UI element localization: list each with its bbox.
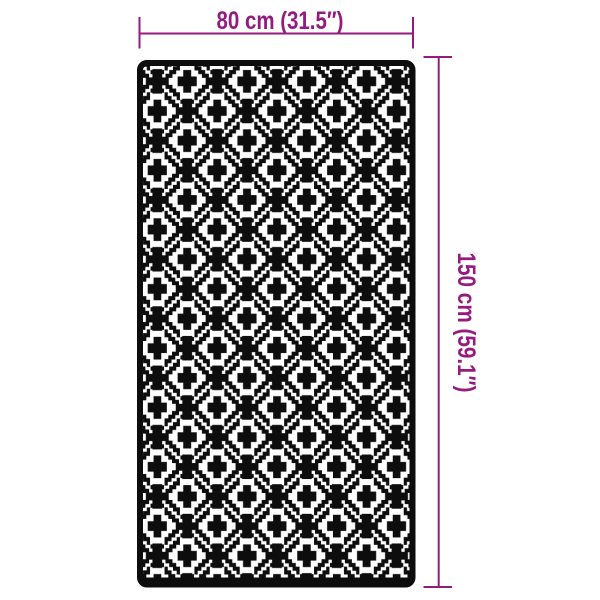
svg-text:150 cm (59.1″): 150 cm (59.1″) xyxy=(452,253,480,393)
svg-text:80 cm (31.5″): 80 cm (31.5″) xyxy=(217,7,344,35)
